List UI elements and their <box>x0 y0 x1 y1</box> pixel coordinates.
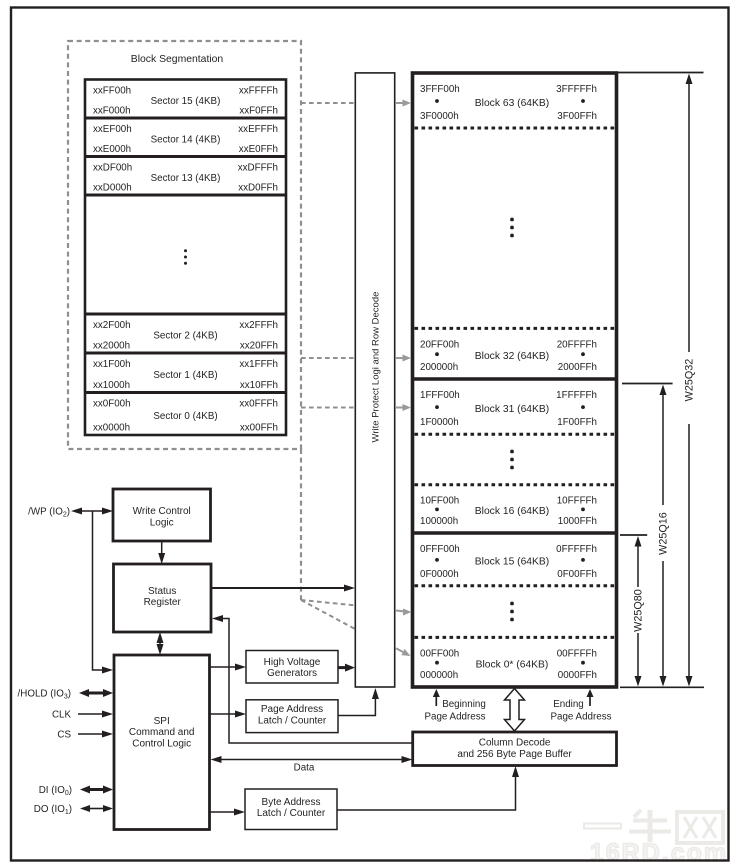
svg-text:20FFFFh: 20FFFFh <box>557 339 597 350</box>
svg-text:Column Decode: Column Decode <box>479 737 551 748</box>
svg-text:00FFFFh: 00FFFFh <box>557 648 597 659</box>
svg-text:3FFF00h: 3FFF00h <box>420 84 460 95</box>
svg-text:Byte Address: Byte Address <box>262 797 321 808</box>
svg-text:Data: Data <box>294 763 315 774</box>
svg-text:2000FFh: 2000FFh <box>558 362 597 373</box>
svg-text:High Voltage: High Voltage <box>264 657 321 668</box>
svg-text:Sector 0 (4KB): Sector 0 (4KB) <box>153 411 217 422</box>
svg-text:xxDFFFh: xxDFFFh <box>238 163 278 174</box>
svg-text:3FFFFFh: 3FFFFFh <box>556 84 597 95</box>
svg-text:0F0000h: 0F0000h <box>420 569 459 580</box>
svg-text:xx2FFFh: xx2FFFh <box>239 320 278 331</box>
svg-text:xxF0FFh: xxF0FFh <box>239 106 278 117</box>
svg-text:xx1FFFh: xx1FFFh <box>239 359 278 370</box>
svg-text:00FF00h: 00FF00h <box>420 648 459 659</box>
svg-text:xxF000h: xxF000h <box>93 106 131 117</box>
svg-text:Write Control: Write Control <box>133 506 191 517</box>
svg-text:20FF00h: 20FF00h <box>420 339 459 350</box>
svg-text:Page Address: Page Address <box>550 712 611 723</box>
svg-text:10FFFFh: 10FFFFh <box>557 496 597 507</box>
svg-text:Beginning: Beginning <box>442 699 486 710</box>
svg-text:xx0F00h: xx0F00h <box>93 399 131 410</box>
svg-text:000000h: 000000h <box>420 670 458 681</box>
svg-text:xx20FFh: xx20FFh <box>240 341 278 352</box>
svg-text:200000h: 200000h <box>420 362 458 373</box>
svg-text:xx10FFh: xx10FFh <box>240 380 278 391</box>
svg-text:xxE0FFh: xxE0FFh <box>239 144 278 155</box>
svg-text:Status: Status <box>148 586 176 597</box>
svg-text:Latch / Counter: Latch / Counter <box>257 808 326 819</box>
svg-text:Generators: Generators <box>267 668 317 679</box>
svg-text:xx1000h: xx1000h <box>93 380 130 391</box>
svg-text:xxEFFFh: xxEFFFh <box>238 124 278 135</box>
svg-text:and 256 Byte Page Buffer: and 256 Byte Page Buffer <box>457 749 572 760</box>
svg-text:Sector 13 (4KB): Sector 13 (4KB) <box>151 173 221 184</box>
svg-text:CLK: CLK <box>52 710 72 721</box>
svg-text:CS: CS <box>57 730 71 741</box>
svg-text:Logic: Logic <box>150 517 174 528</box>
svg-text:xx0000h: xx0000h <box>93 423 130 434</box>
svg-text:xx1F00h: xx1F00h <box>93 359 131 370</box>
svg-text:xxEF00h: xxEF00h <box>93 124 132 135</box>
svg-text:Block 31 (64KB): Block 31 (64KB) <box>475 404 549 415</box>
svg-text:0F00FFh: 0F00FFh <box>557 569 597 580</box>
svg-text:1F00FFh: 1F00FFh <box>557 417 597 428</box>
svg-text:xxD000h: xxD000h <box>93 183 132 194</box>
svg-text:1FFFFFh: 1FFFFFh <box>556 390 597 401</box>
svg-text:Sector 14 (4KB): Sector 14 (4KB) <box>151 134 221 145</box>
svg-text:xxE000h: xxE000h <box>93 144 131 155</box>
svg-text:Ending: Ending <box>553 699 584 710</box>
svg-text:16RD.com: 16RD.com <box>590 839 728 867</box>
svg-text:Sector 15 (4KB): Sector 15 (4KB) <box>151 96 221 107</box>
svg-text:xxDF00h: xxDF00h <box>93 163 132 174</box>
svg-text:Block 63 (64KB): Block 63 (64KB) <box>475 98 549 109</box>
svg-text:3F0000h: 3F0000h <box>420 111 459 122</box>
svg-text:/HOLD (IO3): /HOLD (IO3) <box>18 689 71 701</box>
svg-text:Register: Register <box>144 597 182 608</box>
svg-text:xxD0FFh: xxD0FFh <box>238 183 278 194</box>
svg-text:1FFF00h: 1FFF00h <box>420 390 460 401</box>
svg-text:3F00FFh: 3F00FFh <box>557 111 597 122</box>
svg-text:Block 15 (64KB): Block 15 (64KB) <box>475 557 549 568</box>
svg-text:xx2000h: xx2000h <box>93 341 130 352</box>
svg-text:W25Q32: W25Q32 <box>684 359 696 402</box>
svg-text:0000FFh: 0000FFh <box>558 670 597 681</box>
svg-text:Command and: Command and <box>129 727 195 738</box>
svg-text:Page Address: Page Address <box>424 712 485 723</box>
svg-text:SPI: SPI <box>154 716 170 727</box>
svg-text:W25Q80: W25Q80 <box>633 589 645 632</box>
svg-text:Block Segmentation: Block Segmentation <box>131 54 224 65</box>
svg-text:xx0FFFh: xx0FFFh <box>239 399 278 410</box>
svg-text:Control Logic: Control Logic <box>132 738 191 749</box>
svg-text:xxFFFFh: xxFFFFh <box>239 86 278 97</box>
svg-text:Latch / Counter: Latch / Counter <box>258 715 327 726</box>
svg-text:1F0000h: 1F0000h <box>420 417 459 428</box>
svg-text:0FFFFFh: 0FFFFFh <box>556 544 597 555</box>
svg-text:W25Q16: W25Q16 <box>658 512 670 555</box>
svg-text:Block 32 (64KB): Block 32 (64KB) <box>475 351 549 362</box>
svg-text:Block 16 (64KB): Block 16 (64KB) <box>475 506 549 517</box>
svg-text:10FF00h: 10FF00h <box>420 496 459 507</box>
svg-text:Block 0* (64KB): Block 0* (64KB) <box>476 660 549 671</box>
svg-text:100000h: 100000h <box>420 516 458 527</box>
svg-text:Sector 1 (4KB): Sector 1 (4KB) <box>153 370 217 381</box>
svg-text:xx2F00h: xx2F00h <box>93 320 131 331</box>
svg-text:0FFF00h: 0FFF00h <box>420 544 460 555</box>
svg-text:xx00FFh: xx00FFh <box>240 423 278 434</box>
svg-text:Page Address: Page Address <box>261 704 323 715</box>
svg-text:xxFF00h: xxFF00h <box>93 86 131 97</box>
svg-text:Sector 2 (4KB): Sector 2 (4KB) <box>153 331 217 342</box>
svg-text:Write Protect Logi and Row Dec: Write Protect Logi and Row Decode <box>371 292 382 443</box>
svg-text:1000FFh: 1000FFh <box>558 516 597 527</box>
